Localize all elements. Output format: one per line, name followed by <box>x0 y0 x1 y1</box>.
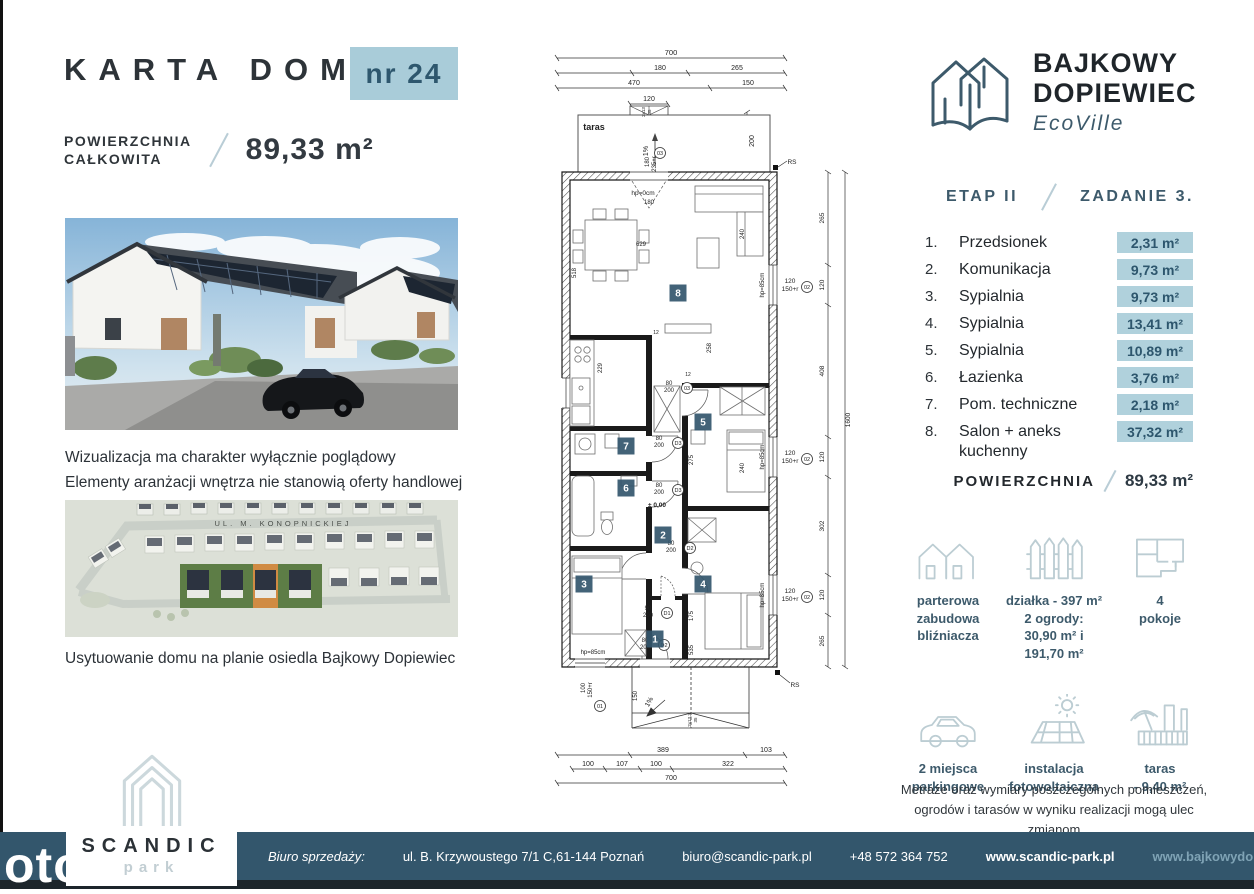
brand-name-line2: DOPIEWIEC <box>1033 78 1197 108</box>
svg-text:hp=85cm: hp=85cm <box>760 273 766 298</box>
svg-text:80: 80 <box>656 436 663 442</box>
svg-text:2x13: 2x13 <box>641 107 646 117</box>
room-number: 7. <box>925 394 959 413</box>
svg-text:150+r: 150+r <box>588 682 594 698</box>
room-number: 4. <box>925 313 959 332</box>
svg-text:200: 200 <box>749 135 756 147</box>
total-area-summary: POWIERZCHNIA 89,33 m² <box>925 469 1193 493</box>
feature-rooms: 4 pokoje <box>1110 520 1210 662</box>
scandic-house-icon <box>116 744 188 833</box>
svg-text:240: 240 <box>740 462 746 473</box>
footer-address: ul. B. Krzywoustego 7/1 C,61-144 Poznań <box>403 849 644 864</box>
svg-text:03: 03 <box>657 151 663 157</box>
svg-text:RS: RS <box>790 682 800 689</box>
floorplan-icon <box>1125 520 1195 582</box>
room-number-badge: 4 <box>695 576 712 593</box>
terrace-umbrella-icon <box>1125 688 1195 750</box>
svg-text:5: 5 <box>700 418 706 429</box>
feature-caption: działka - 397 m² 2 ogrody: 30,90 m² i 19… <box>1004 592 1104 662</box>
twin-houses-icon <box>910 520 986 582</box>
svg-text:229: 229 <box>598 362 604 373</box>
svg-text:100: 100 <box>581 682 587 693</box>
svg-text:12: 12 <box>685 372 691 378</box>
svg-text:200: 200 <box>654 443 665 449</box>
feature-caption: 4 pokoje <box>1139 592 1181 627</box>
svg-text:120: 120 <box>819 589 826 600</box>
feature-twin-houses: parterowa zabudowa bliźniacza <box>898 520 998 662</box>
svg-text:1%: 1% <box>644 696 655 708</box>
room-row: 3.Sypialnia9,73 m² <box>925 286 1193 307</box>
svg-text:01: 01 <box>597 704 603 710</box>
svg-text:535: 535 <box>689 644 695 655</box>
room-area-badge: 9,73 m² <box>1117 259 1193 280</box>
footer-website-scandic: www.scandic-park.pl <box>986 849 1115 864</box>
room-row: 2.Komunikacja9,73 m² <box>925 259 1193 280</box>
window <box>561 378 571 408</box>
svg-text:700: 700 <box>665 775 677 782</box>
svg-text:408: 408 <box>819 365 826 376</box>
room-area-badge: 3,76 m² <box>1117 367 1193 388</box>
svg-text:2x13,3: 2x13,3 <box>687 713 692 727</box>
svg-text:03: 03 <box>684 386 690 392</box>
slash-divider <box>209 133 229 167</box>
svg-text:4: 4 <box>700 580 706 591</box>
svg-text:1%: 1% <box>643 146 650 156</box>
footer-website-bajkowy: www.bajkowydopiewiec.pl <box>1153 849 1254 864</box>
svg-text:200: 200 <box>654 490 665 496</box>
total-area-label: POWIERZCHNIA CAŁKOWITA <box>64 132 192 168</box>
svg-text:200: 200 <box>666 548 677 554</box>
plan-symbol-circle: 02 <box>802 282 813 293</box>
room-row: 6.Łazienka3,76 m² <box>925 367 1193 388</box>
room-number: 8. <box>925 421 959 440</box>
stage-row: ETAP II ZADANIE 3. <box>946 182 1194 212</box>
room-number: 5. <box>925 340 959 359</box>
room-number: 3. <box>925 286 959 305</box>
total-area-value: 89,33 m² <box>246 133 374 167</box>
svg-text:D1: D1 <box>663 611 670 617</box>
room-row: 4.Sypialnia13,41 m² <box>925 313 1193 334</box>
furniture <box>570 186 765 656</box>
svg-text:120: 120 <box>785 278 796 285</box>
svg-text:35: 35 <box>693 717 698 723</box>
room-row: 8.Salon + aneks kuchenny37,32 m² <box>925 421 1193 462</box>
page-title: KARTA DOMU <box>64 52 392 88</box>
plan-symbol-circle: 02 <box>802 454 813 465</box>
svg-text:100: 100 <box>650 761 662 768</box>
photo-caption: Wizualizacja ma charakter wyłącznie pogl… <box>65 446 462 496</box>
room-name: Przedsionek <box>959 232 1117 253</box>
svg-text:± 0,00: ± 0,00 <box>648 502 666 509</box>
plan-symbol-circle: 03 <box>682 383 693 394</box>
svg-text:D3: D3 <box>674 441 681 447</box>
slash-divider <box>1103 470 1116 492</box>
svg-text:302: 302 <box>819 520 826 531</box>
svg-text:120: 120 <box>785 588 796 595</box>
svg-text:100: 100 <box>582 761 594 768</box>
room-number: 1. <box>925 232 959 251</box>
room-name: Komunikacja <box>959 259 1117 280</box>
svg-text:hp=85cm: hp=85cm <box>760 583 766 608</box>
car-icon <box>911 688 985 750</box>
house-visualization-image <box>65 218 458 430</box>
site-plan-street-label: UL. M. KONOPNICKIEJ <box>214 519 351 528</box>
room-name: Sypialnia <box>959 286 1117 307</box>
room-area-badge: 10,89 m² <box>1117 340 1193 361</box>
svg-text:1: 1 <box>652 635 658 646</box>
svg-text:175: 175 <box>689 610 695 621</box>
scandic-logo-block: SCANDIC park <box>66 744 237 886</box>
scandic-subname: park <box>124 859 180 876</box>
scandic-name: SCANDIC <box>81 835 221 858</box>
feature-caption: parterowa zabudowa bliźniacza <box>917 592 980 645</box>
svg-text:hp=85cm: hp=85cm <box>581 650 606 656</box>
svg-text:3: 3 <box>581 580 587 591</box>
room-number: 2. <box>925 259 959 278</box>
brand-logo-icon <box>925 48 1015 139</box>
room-number-badge: 3 <box>576 576 593 593</box>
svg-text:389: 389 <box>657 747 669 754</box>
room-name: Łazienka <box>959 367 1117 388</box>
room-number-badge: 2 <box>655 527 672 544</box>
plan-symbol-circle: D3 <box>673 485 684 496</box>
room-name: Sypialnia <box>959 340 1117 361</box>
brand-block: BAJKOWY DOPIEWIEC EcoVille <box>925 48 1197 139</box>
plan-symbol-circle: 01 <box>595 701 606 712</box>
svg-text:150: 150 <box>742 80 754 87</box>
total-area-row: POWIERZCHNIA CAŁKOWITA 89,33 m² <box>64 131 374 169</box>
svg-text:hp=85cm: hp=85cm <box>760 445 766 470</box>
svg-text:200: 200 <box>643 613 654 619</box>
brand-name-line1: BAJKOWY <box>1033 48 1197 78</box>
room-number-badge: 7 <box>618 438 635 455</box>
fence-icon <box>1019 520 1089 582</box>
terrace <box>578 106 770 172</box>
room-number-badge: 1 <box>647 631 664 648</box>
svg-text:150+r: 150+r <box>782 458 800 465</box>
room-number-badge: 8 <box>670 285 687 302</box>
plan-symbol-circle: 02 <box>802 592 813 603</box>
svg-text:7: 7 <box>623 442 629 453</box>
svg-text:180: 180 <box>644 200 655 206</box>
room-row: 7.Pom. techniczne2,18 m² <box>925 394 1193 415</box>
svg-text:180: 180 <box>654 65 666 72</box>
svg-text:103: 103 <box>760 747 772 754</box>
site-plan-caption: Usytuowanie domu na planie osiedla Bajko… <box>65 650 455 668</box>
svg-text:258: 258 <box>707 342 713 353</box>
svg-text:hp=0cm: hp=0cm <box>631 190 654 197</box>
svg-text:470: 470 <box>628 80 640 87</box>
svg-text:150+r: 150+r <box>782 286 800 293</box>
svg-text:02: 02 <box>804 595 810 601</box>
svg-text:120: 120 <box>819 279 826 290</box>
svg-text:700: 700 <box>665 48 678 57</box>
svg-text:80: 80 <box>656 483 663 489</box>
svg-text:120: 120 <box>785 450 796 457</box>
room-number-badge: 6 <box>618 480 635 497</box>
site-plan-image: UL. M. KONOPNICKIEJ <box>65 500 458 637</box>
window <box>575 658 605 668</box>
slash-divider <box>1041 183 1057 210</box>
svg-text:265: 265 <box>819 212 826 223</box>
svg-text:2: 2 <box>660 531 666 542</box>
svg-text:D2: D2 <box>686 546 693 552</box>
svg-text:1600: 1600 <box>845 412 852 427</box>
footer-office-label: Biuro sprzedaży: <box>268 849 365 864</box>
svg-text:90: 90 <box>645 606 652 612</box>
svg-text:200: 200 <box>664 388 675 394</box>
summary-value: 89,33 m² <box>1125 471 1193 491</box>
svg-text:235+r: 235+r <box>652 156 658 172</box>
footer-email: biuro@scandic-park.pl <box>682 849 812 864</box>
room-area-badge: 2,18 m² <box>1117 394 1193 415</box>
task-label: ZADANIE 3. <box>1080 188 1194 206</box>
svg-text:265: 265 <box>731 65 743 72</box>
room-area-badge: 37,32 m² <box>1117 421 1193 442</box>
svg-text:120: 120 <box>819 451 826 462</box>
svg-text:80: 80 <box>666 381 673 387</box>
svg-text:35: 35 <box>647 109 652 115</box>
footer-phone: +48 572 364 752 <box>850 849 948 864</box>
svg-text:150+r: 150+r <box>782 596 800 603</box>
stage-label: ETAP II <box>946 188 1018 206</box>
room-name: Sypialnia <box>959 313 1117 334</box>
room-number-badge: 5 <box>695 414 712 431</box>
svg-text:120: 120 <box>643 96 655 103</box>
room-area-badge: 9,73 m² <box>1117 286 1193 307</box>
house-number-badge: nr 24 <box>350 47 458 100</box>
svg-text:02: 02 <box>804 457 810 463</box>
svg-text:D3: D3 <box>674 488 681 494</box>
summary-label: POWIERZCHNIA <box>953 473 1095 490</box>
room-row: 1.Przedsionek2,31 m² <box>925 232 1193 253</box>
svg-text:107: 107 <box>616 761 628 768</box>
feature-grid: parterowa zabudowa bliźniacza działka - … <box>898 520 1210 795</box>
room-area-badge: 13,41 m² <box>1117 313 1193 334</box>
svg-text:518: 518 <box>572 267 578 278</box>
plan-symbol-circle: D2 <box>685 543 696 554</box>
feature-plot: działka - 397 m² 2 ogrody: 30,90 m² i 19… <box>1004 520 1104 662</box>
plan-symbol-circle: 03 <box>655 148 666 159</box>
plan-symbol-circle: D1 <box>662 608 673 619</box>
svg-text:265: 265 <box>819 635 826 646</box>
svg-text:12: 12 <box>653 330 659 336</box>
svg-text:02: 02 <box>804 285 810 291</box>
room-name: Pom. techniczne <box>959 394 1117 415</box>
svg-text:240: 240 <box>740 228 746 239</box>
brand-subname: EcoVille <box>1033 112 1197 136</box>
solar-panel-icon <box>1016 688 1092 750</box>
svg-text:322: 322 <box>722 761 734 768</box>
room-number: 6. <box>925 367 959 386</box>
svg-text:taras: taras <box>583 122 605 132</box>
room-row: 5.Sypialnia10,89 m² <box>925 340 1193 361</box>
svg-text:RS: RS <box>787 159 797 166</box>
svg-text:8: 8 <box>675 289 681 300</box>
room-name: Salon + aneks kuchenny <box>959 421 1117 462</box>
floor-plan: 7001802654701501202x1335taras1%200180235… <box>545 38 905 790</box>
svg-text:150: 150 <box>633 690 639 701</box>
room-area-badge: 2,31 m² <box>1117 232 1193 253</box>
plan-symbol-circle: D3 <box>673 438 684 449</box>
svg-text:6: 6 <box>623 484 629 495</box>
svg-text:180: 180 <box>645 156 651 167</box>
room-list: 1.Przedsionek2,31 m²2.Komunikacja9,73 m²… <box>925 232 1193 462</box>
svg-text:629: 629 <box>636 242 647 248</box>
svg-text:275: 275 <box>689 454 695 465</box>
page-left-border <box>0 0 3 832</box>
